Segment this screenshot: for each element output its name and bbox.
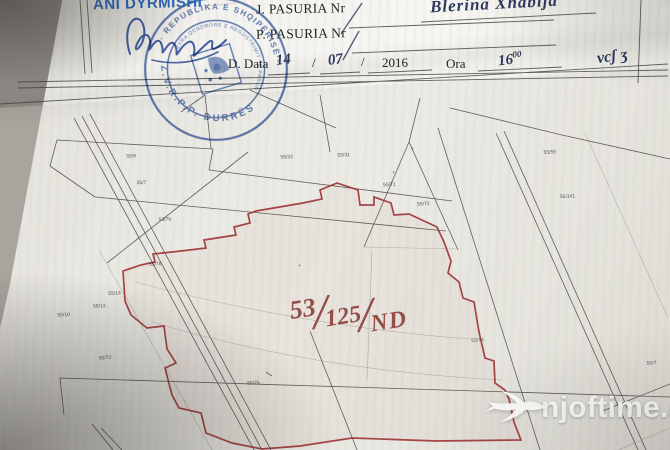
- parcel-label: 55/7: [647, 360, 657, 367]
- parcel-label: 55/74: [471, 337, 484, 344]
- date-day-value: 14: [275, 51, 292, 70]
- parcel-label: 55/32: [280, 154, 293, 161]
- parcel-label: +: [411, 146, 414, 152]
- annotation-slash: /: [357, 296, 373, 334]
- parcel-label: 55/71: [383, 182, 396, 189]
- parcel-label: 55/31: [337, 152, 350, 159]
- parcel-label: 55/73: [99, 355, 112, 362]
- parcel-label: 53/79: [158, 216, 171, 223]
- parcel-label: 55/55: [543, 149, 556, 156]
- parcel-label: +: [392, 170, 395, 176]
- parcel-label: 55/10: [57, 312, 70, 319]
- field-p-pasuria-label: P. PASURIA Nr: [256, 25, 346, 43]
- date-label: D. Data: [228, 56, 268, 72]
- date-separator: /: [361, 54, 365, 70]
- date-year-value: 2016: [382, 55, 408, 71]
- date-month-value: 07: [327, 51, 344, 70]
- time-label: Ora: [446, 56, 466, 72]
- parcel-label: +: [298, 263, 301, 269]
- parcel-label: 55/141: [560, 193, 576, 200]
- watermark: njoftime.al: [484, 387, 670, 429]
- time-minutes: 00: [512, 49, 522, 60]
- annotation-suffix: ND: [369, 307, 409, 336]
- time-value: 1600: [497, 49, 523, 71]
- parcel-label: 55/78: [149, 261, 162, 268]
- parcel-label: 55/76: [247, 380, 260, 387]
- swallow-icon: [484, 387, 548, 429]
- photo-background: 55/955/753/7955/7855/3255/3155/7155/7255…: [0, 0, 670, 450]
- field-j-pasuria-label: J. PASURIA Nr: [256, 0, 346, 18]
- watermark-text: njoftime.al: [541, 391, 670, 425]
- annotation-slash: /: [312, 293, 328, 331]
- parcel-label: 55/7: [137, 180, 147, 187]
- parcel-label: 55/14: [108, 290, 121, 297]
- parcel-label: 55/72: [417, 201, 430, 208]
- parcel-label: 55/9: [126, 153, 136, 160]
- parcel-label: 55/13: [93, 303, 106, 310]
- date-separator: /: [312, 55, 316, 71]
